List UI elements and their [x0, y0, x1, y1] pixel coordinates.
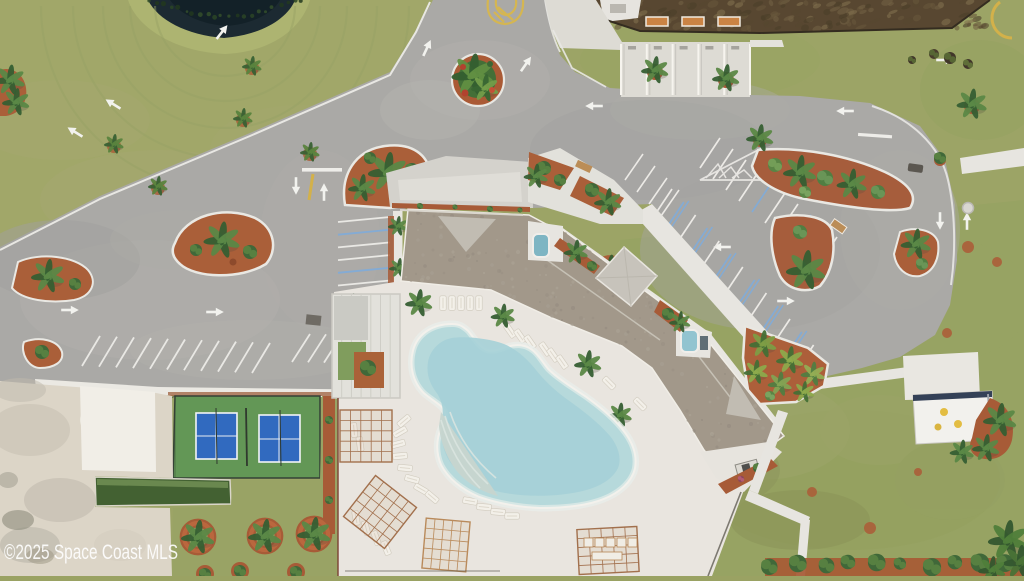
- svg-text:©2025 Space Coast MLS: ©2025 Space Coast MLS: [4, 541, 178, 564]
